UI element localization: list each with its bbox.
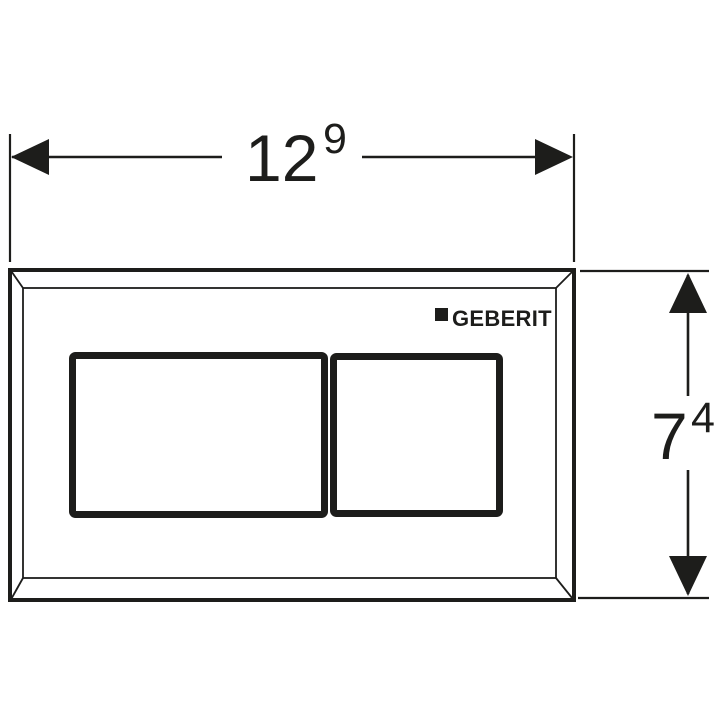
geberit-logo-square-icon bbox=[435, 308, 448, 321]
height-dimension-value: 7 bbox=[651, 399, 688, 473]
right-flush-button bbox=[334, 357, 500, 514]
width-dimension-value: 12 bbox=[245, 121, 318, 195]
geberit-logo: GEBERIT bbox=[435, 306, 552, 331]
arrowhead-right-icon bbox=[535, 139, 573, 175]
geberit-logo-text: GEBERIT bbox=[452, 306, 552, 331]
flush-plate: GEBERIT bbox=[10, 270, 574, 600]
height-dimension-superscript: 4 bbox=[691, 394, 715, 442]
arrowhead-left-icon bbox=[11, 139, 49, 175]
width-dimension: 12 9 bbox=[10, 115, 574, 262]
technical-drawing-canvas: GEBERIT 12 9 7 4 bbox=[0, 0, 720, 720]
height-dimension: 7 4 bbox=[578, 271, 715, 598]
arrowhead-down-icon bbox=[669, 556, 707, 596]
left-flush-button bbox=[73, 356, 325, 515]
arrowhead-up-icon bbox=[669, 273, 707, 313]
width-dimension-superscript: 9 bbox=[323, 115, 347, 163]
flush-plate-dimension-drawing: GEBERIT 12 9 7 4 bbox=[0, 0, 720, 720]
